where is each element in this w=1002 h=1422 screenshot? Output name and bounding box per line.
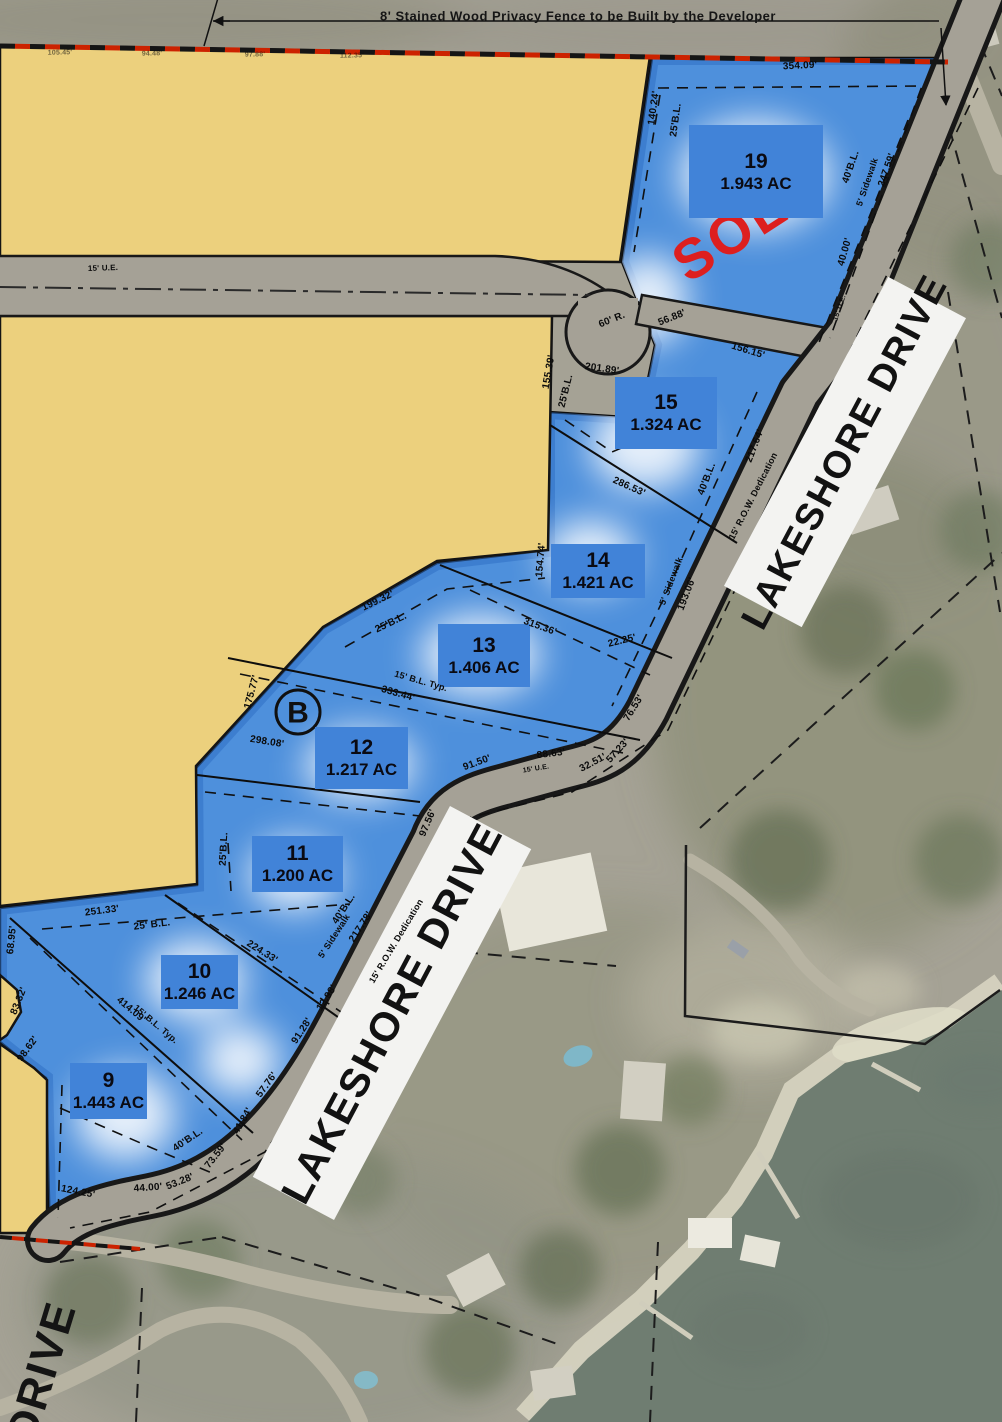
dimension-label: 44.00' [133, 1182, 162, 1195]
lot-area: 1.324 AC [630, 415, 701, 435]
plat-linework: B [0, 0, 1002, 1422]
lot-label-box-19: 191.943 AC [689, 125, 823, 218]
lot-number: 9 [103, 1069, 115, 1093]
lot-label-box-15: 151.324 AC [615, 377, 717, 449]
lot-number: 12 [350, 736, 373, 760]
lot-area: 1.217 AC [326, 760, 397, 780]
lot-area: 1.421 AC [562, 573, 633, 593]
dimension-label: 97.88' [245, 51, 266, 58]
lot-area: 1.943 AC [720, 174, 791, 194]
lot-area: 1.246 AC [164, 984, 235, 1004]
dimension-label: 25'B.L. [218, 832, 231, 866]
lot-number: 10 [188, 960, 211, 984]
lot-area: 1.443 AC [73, 1093, 144, 1113]
lot-label-box-9: 91.443 AC [70, 1063, 147, 1119]
lot-label-box-14: 141.421 AC [551, 544, 645, 598]
lot-label-box-12: 121.217 AC [315, 727, 408, 789]
lot-number: 11 [286, 842, 308, 866]
block-b-label: B [287, 697, 309, 730]
lot-area: 1.406 AC [448, 658, 519, 678]
dimension-label: 105.45' [48, 49, 73, 56]
lot-label-box-10: 101.246 AC [161, 955, 238, 1009]
plat-map-canvas: B 8' Stained Wood Privacy Fence to be Bu… [0, 0, 1002, 1422]
dimension-label: 354.09' [783, 60, 818, 73]
lot-label-box-13: 131.406 AC [438, 624, 530, 687]
lot-number: 13 [472, 634, 495, 658]
lot-label-box-11: 111.200 AC [252, 836, 343, 892]
lot-number: 19 [744, 150, 767, 174]
fence-note: 8' Stained Wood Privacy Fence to be Buil… [380, 9, 776, 24]
dimension-label: 112.35' [340, 52, 364, 59]
lot-area: 1.200 AC [262, 866, 333, 886]
lot-number: 14 [586, 549, 609, 573]
dimension-label: 15' U.E. [88, 263, 118, 273]
lot-number: 15 [654, 391, 677, 415]
dimension-label: 94.48' [142, 50, 163, 57]
